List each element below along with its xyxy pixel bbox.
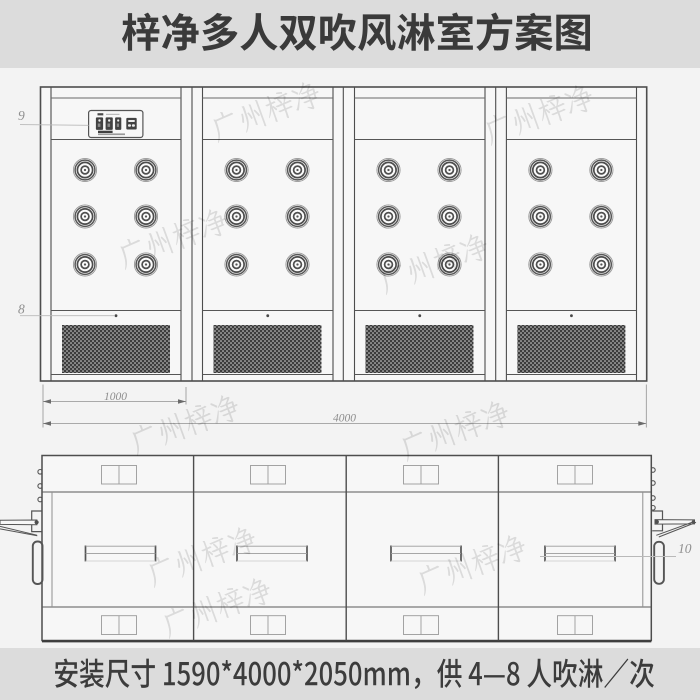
svg-text:10: 10 xyxy=(678,541,692,556)
svg-text:4000: 4000 xyxy=(333,413,356,425)
svg-text:8: 8 xyxy=(18,302,25,317)
svg-text:1000: 1000 xyxy=(104,391,127,403)
svg-text:9: 9 xyxy=(18,108,25,123)
